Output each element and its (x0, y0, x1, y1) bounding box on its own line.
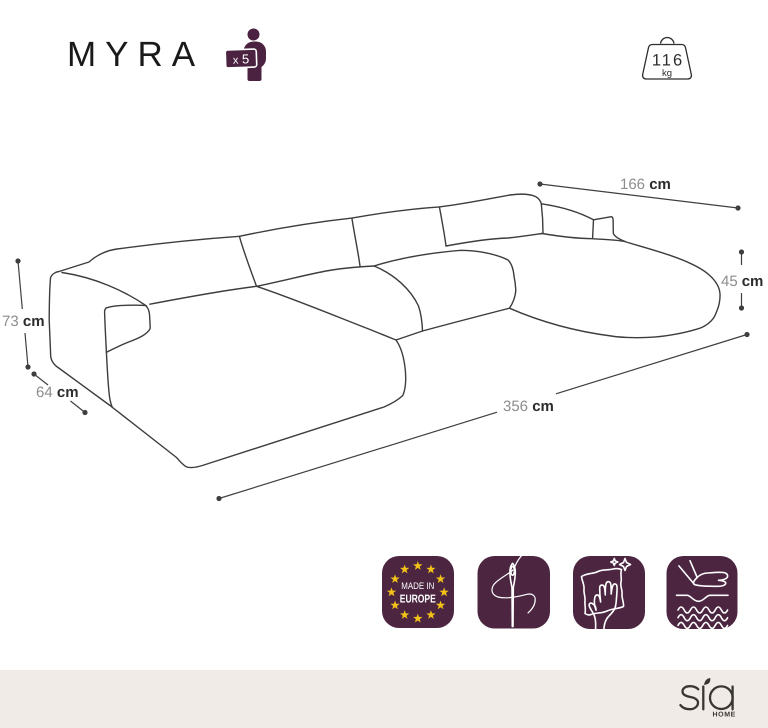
svg-text:356 cm: 356 cm (503, 398, 554, 415)
svg-text:MYRA: MYRA (67, 35, 204, 74)
svg-text:116: 116 (652, 52, 684, 70)
svg-text:kg: kg (662, 68, 672, 79)
svg-text:MADE IN: MADE IN (401, 581, 434, 592)
svg-text:EUROPE: EUROPE (400, 594, 436, 606)
svg-text:73 cm: 73 cm (2, 313, 45, 330)
svg-text:HOME: HOME (713, 711, 736, 718)
svg-text:45cm: 45cm (721, 273, 763, 290)
svg-text:166 cm: 166 cm (620, 176, 671, 193)
svg-text:64 cm: 64 cm (36, 384, 79, 401)
